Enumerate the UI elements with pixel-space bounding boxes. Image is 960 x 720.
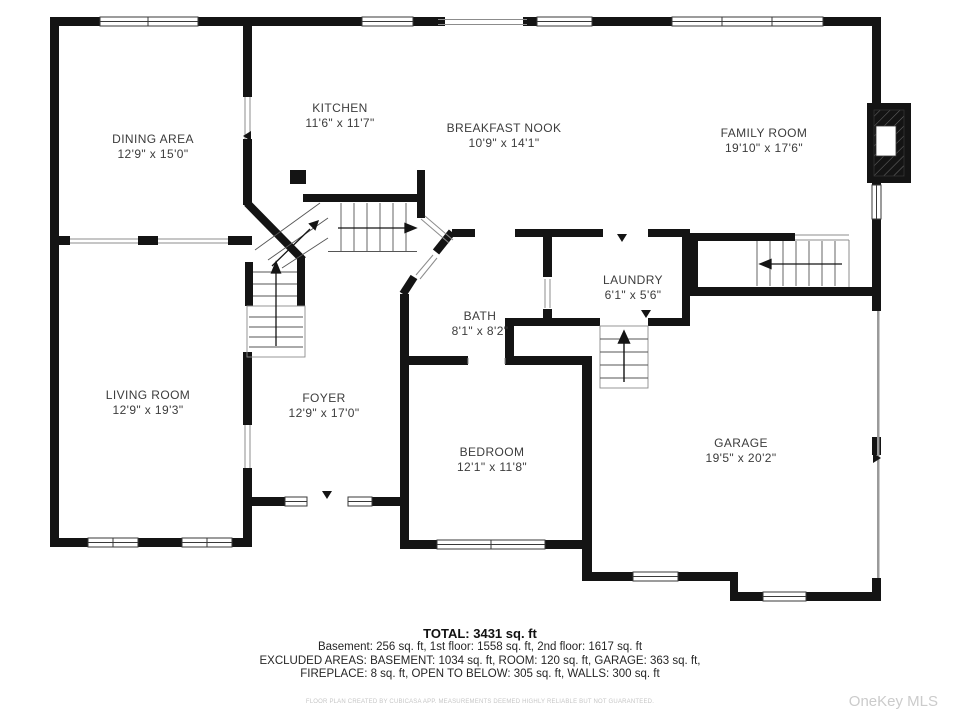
room-label-living-room: LIVING ROOM 12'9" x 19'3" (106, 388, 190, 418)
total-area: TOTAL: 3431 sq. ft (0, 626, 960, 641)
window (100, 17, 198, 26)
wall-diagonal (247, 203, 303, 260)
interior-walls (50, 17, 881, 581)
wall-segment (698, 233, 795, 241)
wall-diagonal (403, 277, 414, 294)
room-dims: 11'6" x 11'7" (305, 116, 374, 131)
excluded-areas-1: EXCLUDED AREAS: BASEMENT: 1034 sq. ft, R… (0, 655, 960, 669)
window (872, 185, 881, 219)
room-name: FOYER (288, 391, 359, 406)
wall-segment (543, 318, 600, 326)
fireplace (867, 103, 911, 183)
window (437, 540, 545, 549)
window (285, 497, 307, 506)
wall-segment (243, 17, 252, 97)
wall-segment (228, 236, 252, 245)
window (633, 572, 678, 581)
room-dims: 19'5" x 20'2" (705, 451, 776, 466)
floor-areas: Basement: 256 sq. ft, 1st floor: 1558 sq… (0, 641, 960, 655)
wall-segment (417, 170, 425, 218)
room-name: LIVING ROOM (106, 388, 190, 403)
wall-segment (245, 262, 253, 306)
room-label-foyer: FOYER 12'9" x 17'0" (288, 391, 359, 421)
wall-segment (138, 236, 158, 245)
wall-segment (690, 287, 881, 296)
wall-segment (505, 356, 592, 365)
wall-segment (543, 229, 552, 277)
window (88, 538, 138, 547)
wall-segment (872, 17, 881, 107)
floor-plan-page: DINING AREA 12'9" x 15'0" KITCHEN 11'6" … (0, 0, 960, 720)
area-summary: TOTAL: 3431 sq. ft Basement: 256 sq. ft,… (0, 626, 960, 682)
room-label-laundry: LAUNDRY 6'1" x 5'6" (603, 273, 663, 303)
room-name: GARAGE (705, 436, 776, 451)
room-label-garage: GARAGE 19'5" x 20'2" (705, 436, 776, 466)
room-dims: 12'9" x 19'3" (106, 403, 190, 418)
room-label-kitchen: KITCHEN 11'6" x 11'7" (305, 101, 374, 131)
wall-segment (297, 258, 305, 306)
room-label-bedroom: BEDROOM 12'1" x 11'8" (457, 445, 527, 475)
wall-segment (303, 194, 419, 202)
room-label-dining-area: DINING AREA 12'9" x 15'0" (112, 132, 194, 162)
window (763, 592, 806, 601)
wall-segment (648, 318, 690, 326)
room-name: FAMILY ROOM (721, 126, 808, 141)
wall-segment (50, 17, 59, 547)
window (362, 17, 413, 26)
wall-segment (872, 437, 881, 455)
room-label-family-room: FAMILY ROOM 19'10" x 17'6" (721, 126, 808, 156)
wall-diagonal (436, 232, 452, 252)
wall-segment (400, 294, 409, 548)
basement-stair-arrow (619, 331, 630, 382)
room-name: LAUNDRY (603, 273, 663, 288)
wall-segment (682, 229, 690, 326)
room-dims: 10'9" x 14'1" (447, 136, 562, 151)
room-dims: 12'9" x 17'0" (288, 406, 359, 421)
mls-watermark: OneKey MLS (849, 693, 938, 710)
room-name: KITCHEN (305, 101, 374, 116)
wall-segment (582, 356, 592, 581)
window (672, 17, 823, 26)
room-dims: 6'1" x 5'6" (603, 288, 663, 303)
wall-segment (243, 468, 252, 547)
room-dims: 12'9" x 15'0" (112, 147, 194, 162)
room-name: BREAKFAST NOOK (447, 121, 562, 136)
room-dims: 12'1" x 11'8" (457, 460, 527, 475)
wall-segment (50, 236, 70, 245)
room-name: BATH (452, 309, 509, 324)
door-marker (617, 234, 627, 242)
wall-segment (243, 352, 252, 425)
garage-right-wall (877, 311, 880, 578)
wall-segment (452, 229, 475, 237)
wall-segment (243, 139, 252, 205)
door-markers (243, 131, 881, 499)
floor-plan-disclaimer: FLOOR PLAN CREATED BY CUBICASA APP. MEAS… (0, 699, 960, 705)
wall-segment (872, 287, 881, 311)
wall-segment (400, 356, 468, 365)
window (348, 497, 372, 506)
family-stair-arrow (760, 260, 842, 269)
window (537, 17, 592, 26)
wall-segment (515, 229, 603, 237)
floor-plan-drawing (0, 0, 960, 720)
window (182, 538, 232, 547)
room-label-bath: BATH 8'1" x 8'2" (452, 309, 509, 339)
room-name: DINING AREA (112, 132, 194, 147)
door-marker (641, 310, 651, 318)
door-marker (322, 491, 332, 499)
room-name: BEDROOM (457, 445, 527, 460)
excluded-areas-2: FIREPLACE: 8 sq. ft, OPEN TO BELOW: 305 … (0, 668, 960, 682)
room-label-breakfast-nook: BREAKFAST NOOK 10'9" x 14'1" (447, 121, 562, 151)
room-dims: 8'1" x 8'2" (452, 324, 509, 339)
wall-segment (690, 233, 698, 295)
room-dims: 19'10" x 17'6" (721, 141, 808, 156)
wall-segment (290, 170, 306, 184)
